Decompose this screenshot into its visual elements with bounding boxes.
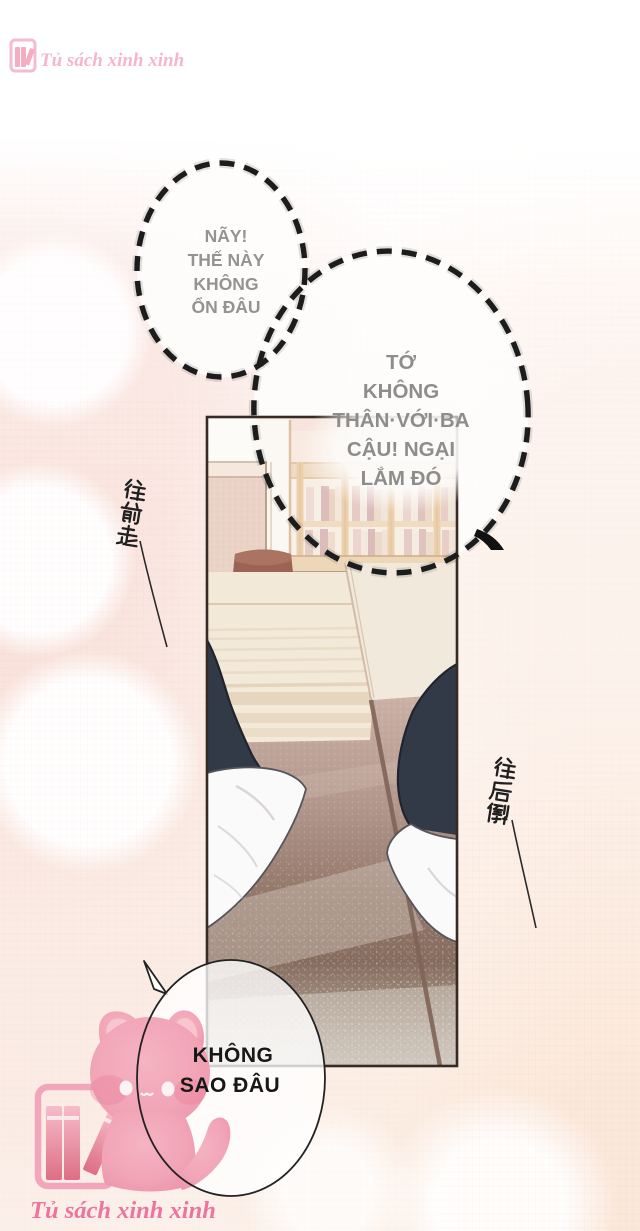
- svg-text:Tủ sách xinh xinh: Tủ sách xinh xinh: [40, 50, 184, 71]
- svg-text:ỔN ĐÂU: ỔN ĐÂU: [191, 296, 260, 317]
- svg-text:CẬU! NGẠI: CẬU! NGẠI: [347, 437, 455, 461]
- svg-text:THẾ NÀY: THẾ NÀY: [188, 249, 265, 270]
- svg-text:THÂN·VỚI·BA: THÂN·VỚI·BA: [332, 408, 469, 432]
- svg-text:KHÔNG: KHÔNG: [193, 1043, 274, 1067]
- svg-text:LẮM ĐÓ: LẮM ĐÓ: [361, 466, 442, 490]
- svg-text:KHÔNG: KHÔNG: [363, 379, 439, 403]
- svg-text:SAO ĐÂU: SAO ĐÂU: [180, 1073, 280, 1097]
- svg-text:Tủ sách xinh xinh: Tủ sách xinh xinh: [30, 1197, 216, 1224]
- svg-text:KHÔNG: KHÔNG: [193, 273, 258, 294]
- svg-text:TỚ: TỚ: [386, 350, 417, 374]
- svg-text:NÃY!: NÃY!: [205, 225, 248, 246]
